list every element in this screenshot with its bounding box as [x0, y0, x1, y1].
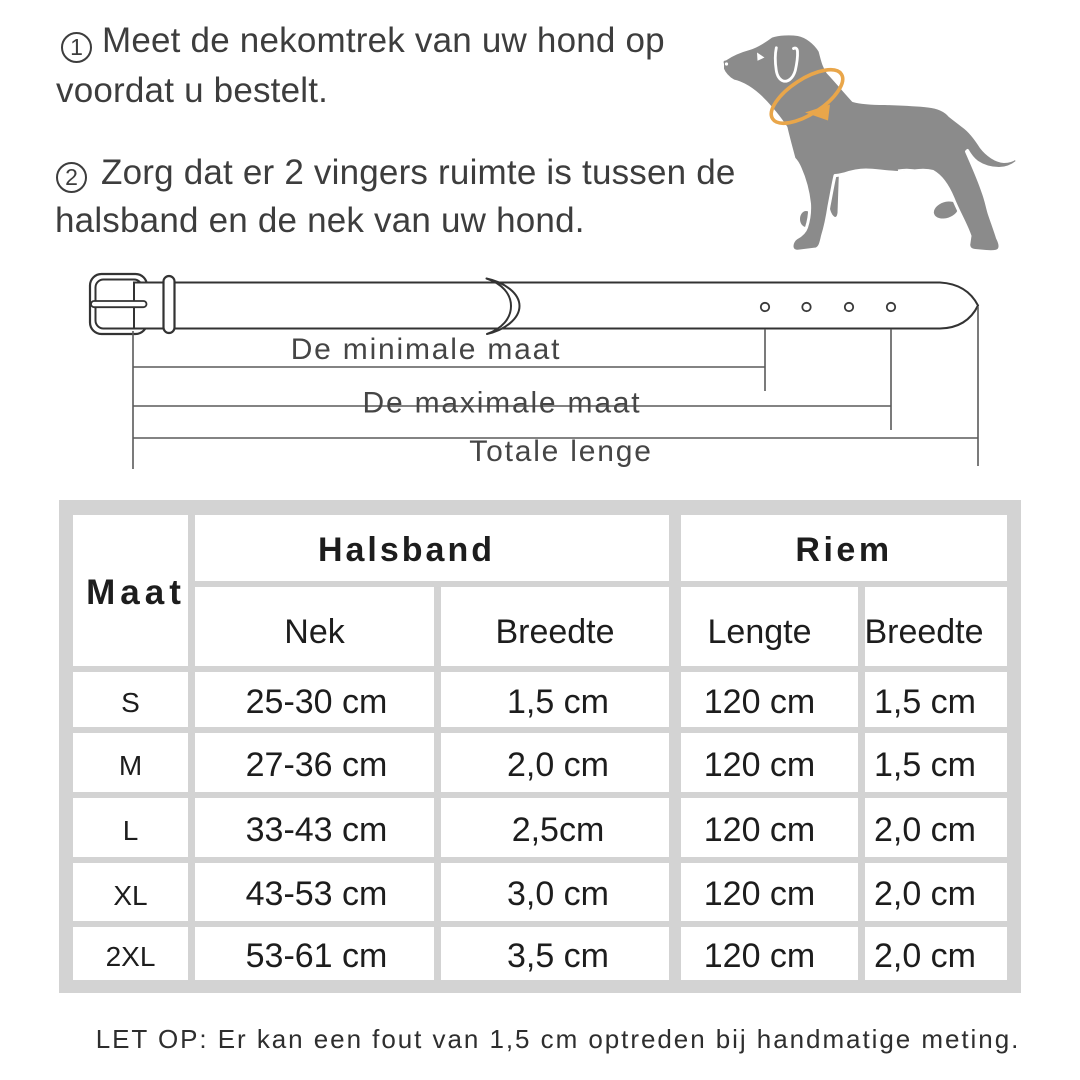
- svg-text:Totale lenge: Totale lenge: [469, 435, 652, 468]
- svg-text:De maximale maat: De maximale maat: [363, 387, 642, 420]
- svg-text:De minimale maat: De minimale maat: [291, 333, 562, 366]
